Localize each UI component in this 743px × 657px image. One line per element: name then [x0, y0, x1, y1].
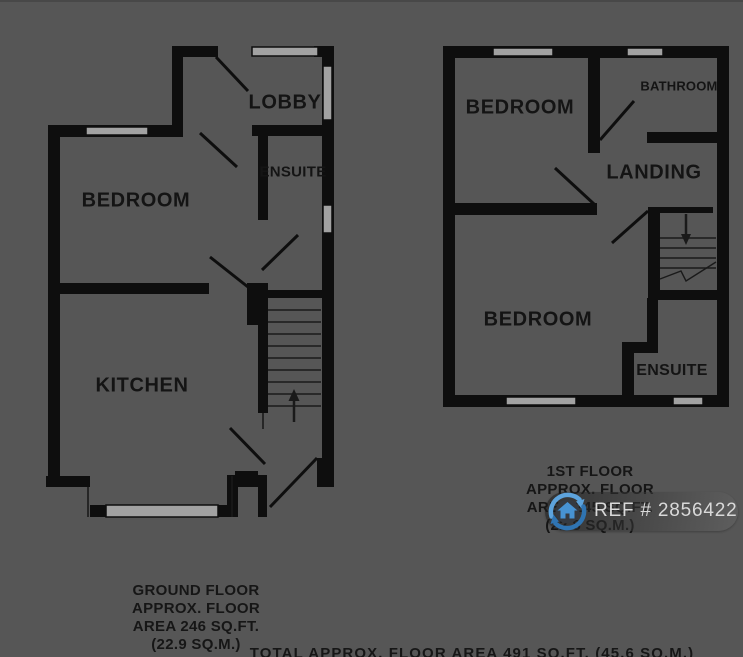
- caption-line: 1ST FLOOR: [505, 463, 675, 481]
- room-label-kitchen: KITCHEN: [95, 375, 188, 398]
- total-area-caption: TOTAL APPROX. FLOOR AREA 491 SQ.FT. (45.…: [152, 645, 743, 657]
- room-label-bedroom-first-bottom: BEDROOM: [484, 309, 593, 332]
- ref-number-text: REF # 2856422: [594, 500, 738, 522]
- ground-floor-walls: [46, 46, 334, 517]
- room-label-bathroom: BATHROOM: [640, 79, 717, 94]
- room-label-lobby: LOBBY: [249, 92, 322, 115]
- ground-floor-caption: GROUND FLOOR APPROX. FLOOR AREA 246 SQ.F…: [111, 582, 281, 654]
- floorplan-page: LOBBY ENSUITE BEDROOM KITCHEN BEDROOM BA…: [0, 0, 743, 657]
- ground-floor-windows: [86, 47, 332, 517]
- caption-line: GROUND FLOOR: [111, 582, 281, 600]
- room-label-bedroom-first-top: BEDROOM: [466, 97, 575, 120]
- room-label-ensuite-ground: ENSUITE: [259, 164, 326, 181]
- caption-line: AREA 246 SQ.FT.: [111, 618, 281, 636]
- room-label-bedroom-ground: BEDROOM: [82, 190, 191, 213]
- ground-floor-stairs: [88, 310, 321, 517]
- first-floor-stairs: [660, 238, 716, 281]
- house-circular-arrows-icon: [544, 488, 591, 535]
- stairs-down-arrow-icon: [681, 214, 691, 245]
- ref-watermark-badge: REF # 2856422: [545, 492, 738, 531]
- room-label-landing: LANDING: [606, 162, 701, 185]
- caption-line: APPROX. FLOOR: [111, 600, 281, 618]
- ground-floor-doors: [200, 57, 317, 507]
- room-label-ensuite-first: ENSUITE: [636, 362, 707, 380]
- top-edge-strip: [0, 0, 743, 2]
